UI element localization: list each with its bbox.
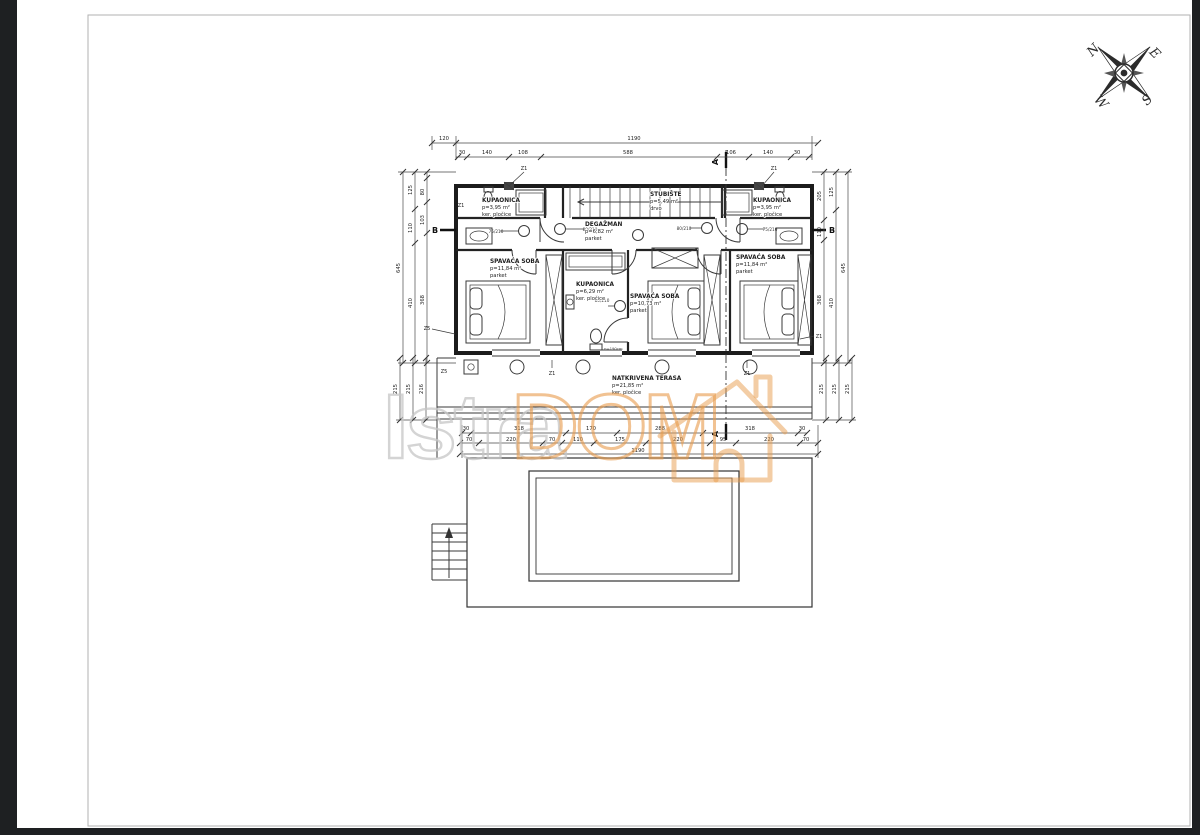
- dim-label: 103: [420, 215, 426, 225]
- room-name: KUPAONICA: [576, 282, 614, 288]
- room-floor: ker. pločice: [482, 211, 511, 218]
- dim-label: 80: [420, 189, 426, 196]
- door-size-label: 75/210: [489, 229, 504, 234]
- dim-label: 410: [829, 298, 835, 308]
- dim-label: 588: [623, 150, 633, 156]
- dim-label: 215: [845, 384, 851, 394]
- dim-label: 110: [408, 223, 414, 233]
- room-name: KUPAONICA: [482, 198, 520, 204]
- floor-plan-drawing: N E S W: [0, 0, 1200, 835]
- room-floor: parket: [630, 308, 647, 314]
- dim-label: 140: [482, 150, 492, 156]
- bed-middle: [648, 281, 704, 343]
- pool-inner: [536, 478, 732, 574]
- dim-label: 106: [726, 150, 736, 156]
- watermark-orange-text: DOM: [512, 376, 718, 478]
- room-area: p=5,49 m²: [650, 199, 678, 205]
- room-area: p=6,82 m²: [585, 229, 613, 235]
- window-label-z1: Z1: [816, 334, 823, 340]
- compass-south-label: S: [1139, 92, 1156, 109]
- bed-right: [740, 281, 798, 343]
- dim-label: 368: [420, 295, 426, 305]
- room-area: p=11,84 m²: [490, 266, 521, 272]
- room-floor: ker. pločice: [753, 211, 782, 218]
- section-b-label: B: [432, 226, 438, 235]
- pool-outer: [529, 471, 739, 581]
- dim-label: 30: [799, 426, 806, 432]
- room-area: p=3,95 m²: [482, 205, 510, 211]
- dim-label: 30: [459, 150, 466, 156]
- room-floor: parket: [736, 269, 753, 275]
- compass-north-label: N: [1083, 41, 1103, 61]
- room-area: p=3,95 m²: [753, 205, 781, 211]
- compass-west-label: W: [1090, 92, 1111, 113]
- dim-label: 645: [396, 263, 402, 273]
- watermark: Istra DOM: [383, 376, 785, 480]
- room-name: KUPAONICA: [753, 198, 791, 204]
- compass-east-label: E: [1145, 44, 1163, 62]
- room-floor: parket: [585, 236, 602, 242]
- room-name: SPAVAĆA SOBA: [490, 258, 540, 265]
- door-size-label: 75/210: [763, 227, 778, 232]
- room-labels: KUPAONICA p=3,95 m² ker. pločice STUBIŠT…: [482, 191, 791, 396]
- dim-label: 95: [720, 437, 727, 443]
- room-name: SPAVAĆA SOBA: [630, 293, 680, 300]
- dim-label: 125: [408, 185, 414, 195]
- dim-label: 205: [817, 191, 823, 201]
- door-size-label: 80/210: [677, 226, 692, 231]
- window-label-z1: Z1: [771, 166, 778, 172]
- dim-label: 70: [803, 437, 810, 443]
- window-label-z1: Z1: [744, 371, 751, 377]
- dim-label: 140: [763, 150, 773, 156]
- dim-label: 645: [841, 263, 847, 273]
- room-name: DEGAŽMAN: [585, 220, 622, 228]
- room-floor: parket: [490, 273, 507, 279]
- window-label-z1: Z1: [521, 166, 528, 172]
- dim-label: 30: [794, 150, 801, 156]
- bed-left: [466, 281, 530, 343]
- room-floor: drvo: [650, 206, 662, 212]
- dim-label: 1190: [627, 136, 640, 142]
- compass-rose: N E S W: [1072, 21, 1177, 126]
- room-name: STUBIŠTE: [650, 191, 682, 198]
- section-b-label: B: [829, 226, 835, 235]
- dim-label: 368: [817, 295, 823, 305]
- parapet-note: p=190cm: [604, 346, 623, 351]
- staircase: [570, 186, 722, 218]
- dim-label: 215: [819, 384, 825, 394]
- dim-label: 108: [518, 150, 528, 156]
- room-name: SPAVAĆA SOBA: [736, 254, 786, 261]
- dim-label: 125: [829, 187, 835, 197]
- window-label-z1: Z1: [458, 203, 465, 209]
- dim-label: 110: [817, 227, 823, 237]
- room-floor: ker. pločice: [576, 295, 605, 302]
- room-area: p=10,73 m²: [630, 301, 661, 307]
- dim-label: 215: [832, 384, 838, 394]
- room-area: p=11,84 m²: [736, 262, 767, 268]
- scanned-floor-plan-page: N E S W: [0, 0, 1200, 835]
- dim-label: 120: [439, 136, 449, 142]
- dim-label: 410: [408, 298, 414, 308]
- window-label-z5: Z5: [441, 369, 448, 375]
- dim-label: 318: [745, 426, 755, 432]
- room-area: p=6,29 m²: [576, 289, 604, 295]
